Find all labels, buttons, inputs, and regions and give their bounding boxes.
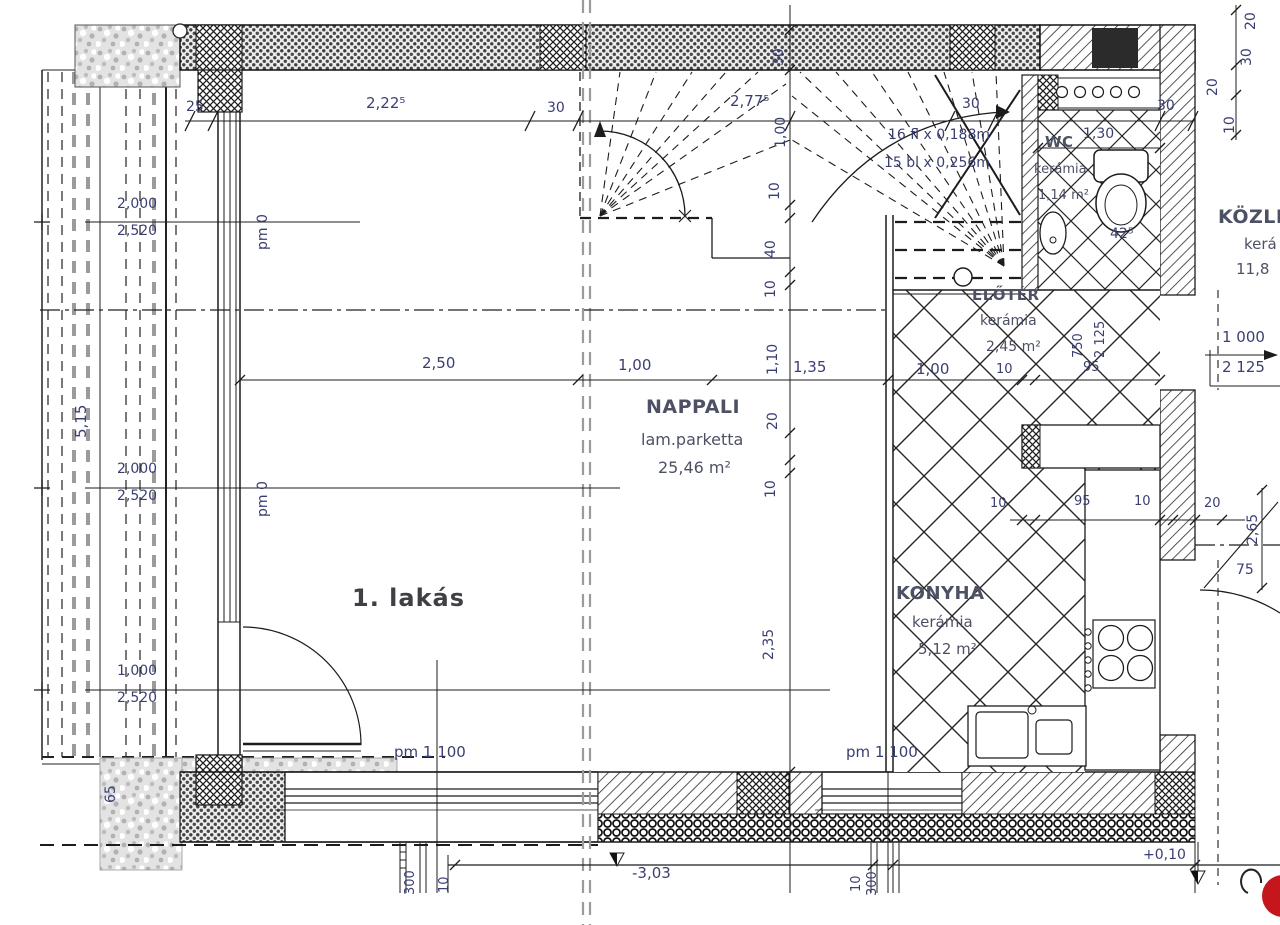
room-eloter-name: ELŐTÉR [972,288,1040,303]
dim-h-100b: 1,00 [916,362,949,377]
toilet-bowl [1096,174,1146,232]
dim-h-100a: 1,00 [618,358,651,373]
stairs [580,72,1022,286]
dim-v-10a: 10 [768,182,782,200]
dim-tr-20a: 20 [1244,12,1258,30]
dim-top-30c: 30 [1157,99,1175,113]
dim-v-30: 30 [772,48,786,66]
dim-tr-30: 30 [1240,48,1254,66]
dim-v-235: 2,35 [762,629,776,660]
dim-v-40: 40 [764,240,778,258]
dim-left-p2t: 2,000 [117,462,157,476]
dim-top-2225: 2,22⁵ [366,96,405,111]
logo [1241,870,1280,917]
dim-top-30b: 30 [962,97,980,111]
stair-treads: 15 bl x 0,256m [884,156,990,170]
level-pm1100-b: pm 1 100 [846,745,918,760]
level-pm0-a: pm 0 [256,214,270,250]
room-nappali-area: 25,46 m² [658,460,731,476]
dim-right-1000: 1 000 [1222,330,1265,345]
room-wc-name: WC [1045,135,1074,150]
kozlekedo-door-arc [1200,590,1280,613]
room-kozlekedo-area: 11,8 [1236,262,1269,277]
dim-k-10a: 10 [990,497,1007,510]
room-konyha-finish: kerámia [912,615,973,630]
bottom-wall [40,755,1195,893]
room-nappali-name: NAPPALI [646,398,740,417]
room-eloter-finish: kerámia [980,314,1037,328]
dim-b-10l: 10 [438,876,451,893]
entry-door-arc [243,627,361,745]
dim-b-300r: 300 [866,871,879,896]
dim-wc-42: 42⁵ [1110,227,1133,241]
unit-label: 1. lakás [352,586,465,610]
dim-b-300l: 300 [404,870,417,895]
dim-right-265: 2,65 [1246,514,1260,545]
dim-left-65: 65 [104,785,118,803]
level-pm0-b: pm 0 [256,481,270,517]
dim-v-10c: 10 [764,480,778,498]
dim-tr-10: 10 [1223,116,1237,134]
dim-h-10: 10 [996,363,1013,376]
dim-v-100: 1,00 [774,117,788,148]
left-wall [198,70,361,805]
level-entry: +0,10 [1143,848,1186,862]
dim-k-20: 20 [1204,497,1221,510]
dim-left-p3t: 1,000 [117,664,157,678]
left-section-strips [42,70,445,764]
floorplan-page: 1. lakás NAPPALI lam.parketta 25,46 m² K… [0,0,1280,925]
top-wall [173,24,1195,70]
dim-door-2125: 2 125 [1094,321,1107,358]
dim-tr-20b: 20 [1206,78,1220,96]
dim-left-p1t: 2,000 [117,197,157,211]
dim-h-95: 95 [1083,361,1100,374]
dim-left-p2b: 2,520 [117,489,157,503]
dim-top-30a: 30 [547,101,565,115]
room-kozlekedo-name: KÖZLE [1218,208,1280,227]
dim-b-10r: 10 [850,875,863,892]
dim-right-75: 75 [1236,563,1254,577]
dim-v-10b: 10 [764,280,778,298]
dim-k-95: 95 [1074,495,1091,508]
dim-k-10b: 10 [1134,495,1151,508]
dim-v-20: 20 [766,412,780,430]
dim-top-25: 25 [186,100,204,114]
room-nappali-finish: lam.parketta [641,432,743,448]
dim-h-250: 2,50 [422,356,455,371]
logo-red-circle [1262,875,1280,917]
room-wc-finish: kerámia [1034,163,1087,176]
dim-left-p1b: 2,520 [117,224,157,238]
room-wc-area: 1,14 m² [1038,189,1089,202]
room-konyha-name: KONYHA [896,585,985,603]
dim-left-p3b: 2,520 [117,691,157,705]
dim-top-2775: 2,77⁵ [730,94,769,109]
dim-h-135: 1,35 [793,360,826,375]
dim-wc-130: 1,30 [1083,127,1114,141]
dim-door-750: 750 [1072,333,1085,358]
stair-risers: 16 fl x 0,188m [888,128,990,142]
level-pm1100-a: pm 1 100 [394,745,466,760]
level-below: -3,03 [632,866,671,881]
room-konyha-area: 5,12 m² [918,642,977,657]
room-kozlekedo-finish: kerá [1244,237,1277,252]
wc-sink [1040,212,1066,254]
dim-right-2125: 2 125 [1222,360,1265,375]
dim-left-515: 5,15 [74,405,89,438]
room-eloter-area: 2,45 m² [986,340,1041,354]
dim-v-110: 1,10 [766,344,780,375]
